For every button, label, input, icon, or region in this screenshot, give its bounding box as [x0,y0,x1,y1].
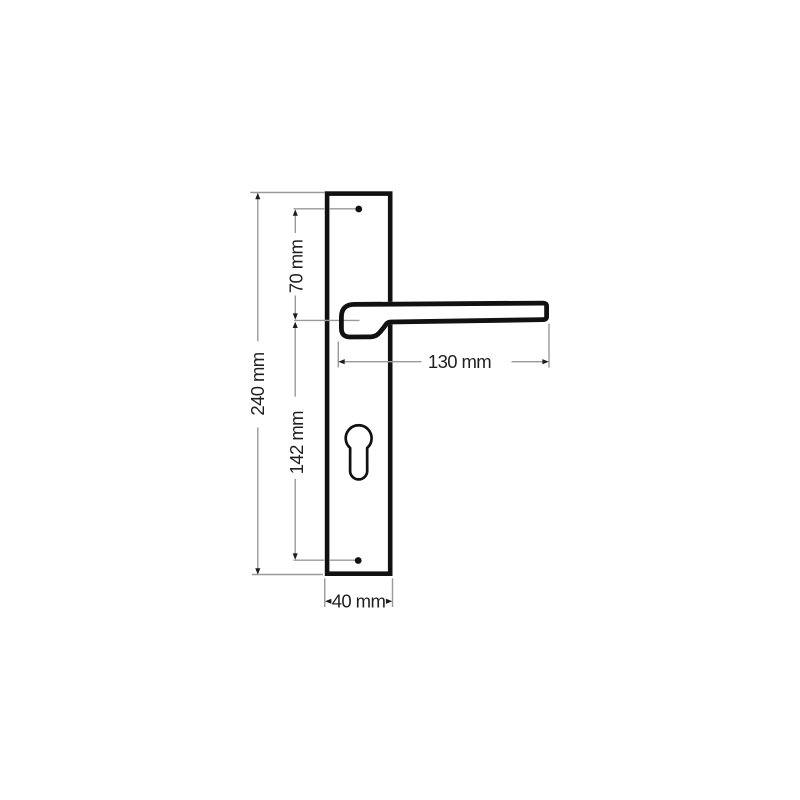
svg-text:240 mm: 240 mm [247,352,268,415]
svg-text:40 mm: 40 mm [332,590,386,611]
svg-text:142 mm: 142 mm [286,411,307,474]
svg-text:70 mm: 70 mm [286,239,307,293]
svg-text:130 mm: 130 mm [428,351,491,372]
